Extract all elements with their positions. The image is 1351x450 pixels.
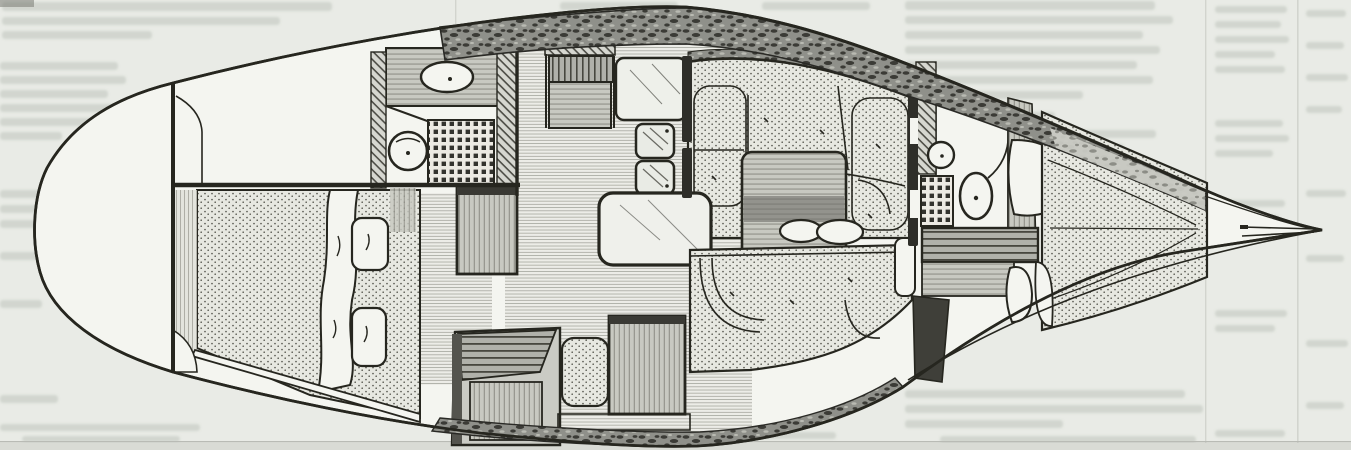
galley-aft-cabinet bbox=[457, 186, 517, 274]
aft-head-sink bbox=[421, 62, 473, 92]
stove-grill bbox=[549, 56, 613, 82]
settee-end-panel bbox=[895, 238, 915, 296]
boat-interior-plan-drawing bbox=[0, 0, 1351, 450]
leaf-vent-oval-1 bbox=[780, 220, 822, 242]
stove-body bbox=[549, 82, 611, 128]
aft-berth-pillow-2 bbox=[352, 308, 386, 366]
leaf-grain-band-1 bbox=[744, 196, 844, 222]
sink-2-drain bbox=[665, 184, 669, 188]
galley-aft-cabinet-top bbox=[457, 186, 517, 195]
helm-seat-cushion bbox=[562, 338, 608, 406]
forward-toilet-drain bbox=[974, 196, 978, 200]
aft-head-shower-grate bbox=[428, 120, 494, 186]
forward-shower-grate bbox=[921, 176, 953, 226]
bulkhead-cockpit-head bbox=[371, 52, 386, 188]
berth-headboard bbox=[390, 188, 416, 232]
forward-bulkhead-door-gap-2 bbox=[910, 190, 918, 218]
vberth-step-base bbox=[922, 262, 1014, 296]
vberth-post bbox=[913, 296, 949, 382]
vberth-step-slats bbox=[922, 228, 1038, 262]
aft-berth-edge-shade bbox=[175, 190, 197, 350]
aft-head-sink-drain bbox=[448, 77, 452, 81]
galley-sink-2 bbox=[636, 161, 674, 194]
nav-cabinet-top bbox=[609, 316, 685, 324]
vberth-filler-1 bbox=[1006, 267, 1032, 322]
scanned-page bbox=[0, 0, 1351, 450]
toilet-drain bbox=[406, 151, 410, 155]
sink-1-drain bbox=[665, 129, 669, 133]
doorpost-galley-dinette-upper bbox=[682, 56, 692, 142]
corner-print-mark bbox=[0, 0, 34, 7]
leaf-vent-oval-2 bbox=[817, 220, 863, 244]
nav-cabinet bbox=[609, 316, 685, 414]
forward-basin-drain bbox=[940, 154, 944, 158]
forward-bulkhead-door-gap-1 bbox=[910, 118, 918, 144]
bulkhead-head-galley bbox=[497, 44, 517, 192]
aft-berth-pillow-1 bbox=[352, 218, 388, 270]
galley-sink-1 bbox=[636, 124, 674, 158]
doorpost-galley-dinette-lower bbox=[682, 148, 692, 198]
